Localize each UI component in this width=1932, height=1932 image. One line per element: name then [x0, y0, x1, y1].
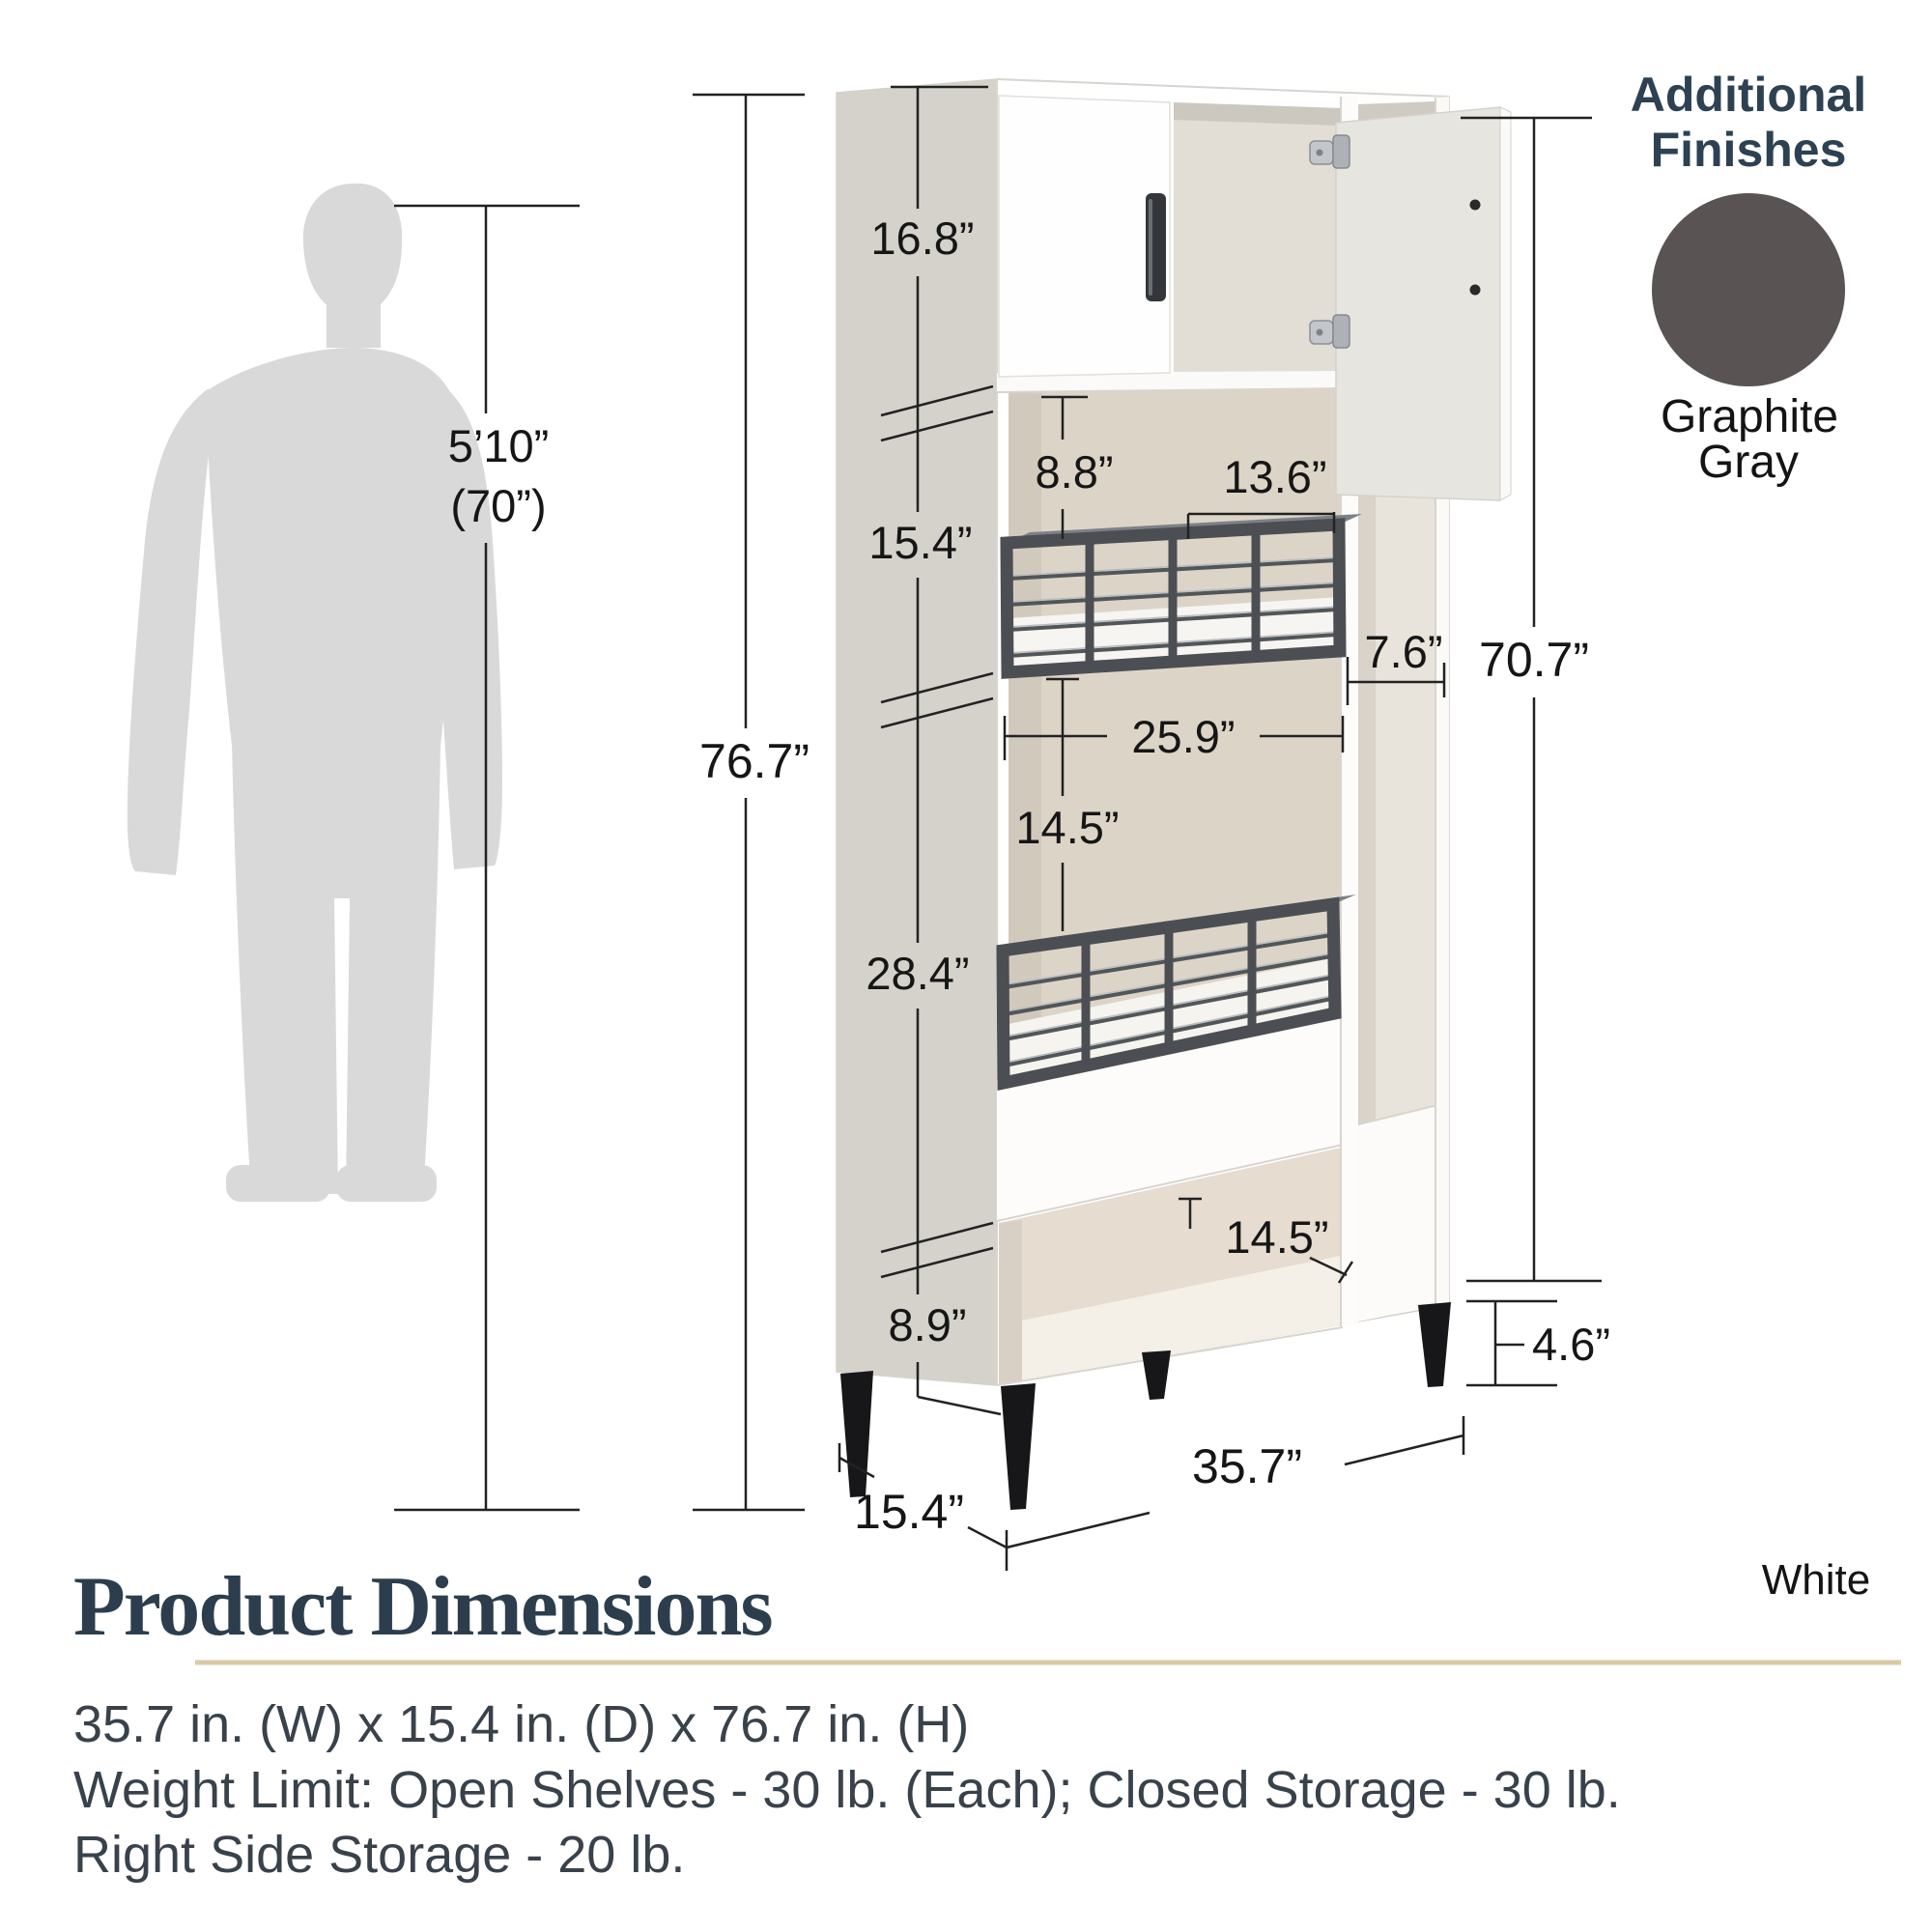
dim-leg-height-label: 4.6” [1532, 1319, 1610, 1370]
leg-front-left [1001, 1383, 1036, 1510]
dim-line-overall-height [693, 95, 805, 1510]
dim-interior-width-label: 25.9” [1131, 711, 1235, 762]
finish-swatch-graphite-gray [1652, 193, 1845, 386]
additional-finishes-block: Additional Finishes Graphite Gray White [1631, 68, 1870, 1604]
dim-side-height-label: 70.7” [1479, 633, 1589, 687]
person-silhouette [128, 184, 502, 1202]
finish-name-line2: Gray [1698, 437, 1799, 488]
opened-door-face [1336, 107, 1500, 500]
opened-door-front-edge [1500, 107, 1511, 500]
dim-overall-depth-label: 15.4” [854, 1485, 964, 1539]
finishes-heading-line1: Additional [1631, 68, 1866, 122]
leg-back-right [1418, 1302, 1451, 1387]
person-right-foot [336, 1165, 437, 1202]
leg-back-left [840, 1371, 873, 1497]
person-left-arm [128, 388, 209, 875]
person-height-label: 5’10” [448, 420, 550, 471]
leg-middle-back [1142, 1350, 1171, 1400]
product-title: Product Dimensions [73, 1560, 772, 1654]
spec-weight-line: Weight Limit: Open Shelves - 30 lb. (Eac… [73, 1761, 1621, 1819]
person-neck [327, 298, 381, 348]
door-handle-highlight [1149, 199, 1152, 296]
finishes-heading-line2: Finishes [1651, 123, 1847, 177]
cubby-left-shadow [999, 1220, 1022, 1385]
current-finish-label: White [1762, 1556, 1870, 1604]
dim-cubby-depth-label: 14.5” [1225, 1211, 1328, 1263]
cabinet-illustration [837, 79, 1511, 1510]
product-details-block: Product Dimensions 35.7 in. (W) x 15.4 i… [73, 1560, 1901, 1884]
finish-name-line1: Graphite [1661, 391, 1838, 442]
dim-overall-height-label: 76.7” [699, 734, 810, 788]
dim-between-baskets-label: 14.5” [1015, 802, 1119, 853]
person-torso [205, 348, 452, 746]
side-storage-bottom-lip [1345, 1105, 1437, 1324]
spec-dimensions-line: 35.7 in. (W) x 15.4 in. (D) x 76.7 in. (… [73, 1695, 969, 1753]
dim-upper-shelf-width-label: 13.6” [1223, 451, 1326, 502]
dim-upper-shelf-section-label: 15.4” [868, 517, 972, 568]
opened-door [1310, 107, 1511, 500]
dim-overall-width-label: 35.7” [1192, 1439, 1302, 1493]
person-left-foot [226, 1165, 330, 1202]
dim-side-width-label: 7.6” [1365, 626, 1443, 677]
top-cabinet-door [999, 96, 1170, 377]
person-head [303, 184, 402, 317]
person-height-alt-label: (70”) [450, 480, 546, 531]
dim-bottom-section-label: 8.9” [889, 1299, 967, 1350]
spec-right-side-line: Right Side Storage - 20 lb. [73, 1826, 685, 1884]
door-pin-hole [1470, 200, 1481, 211]
product-dimensions-infographic: 5’10” (70”) 76.7” 16.8” 15.4” 28.4” 8.9”… [0, 0, 1932, 1932]
person-legs [232, 742, 440, 1194]
dim-shelf-clearance-label: 8.8” [1036, 446, 1114, 497]
dim-middle-section-label: 28.4” [866, 948, 969, 999]
dim-top-cabinet-label: 16.8” [870, 213, 974, 264]
door-pin-hole [1470, 285, 1481, 296]
